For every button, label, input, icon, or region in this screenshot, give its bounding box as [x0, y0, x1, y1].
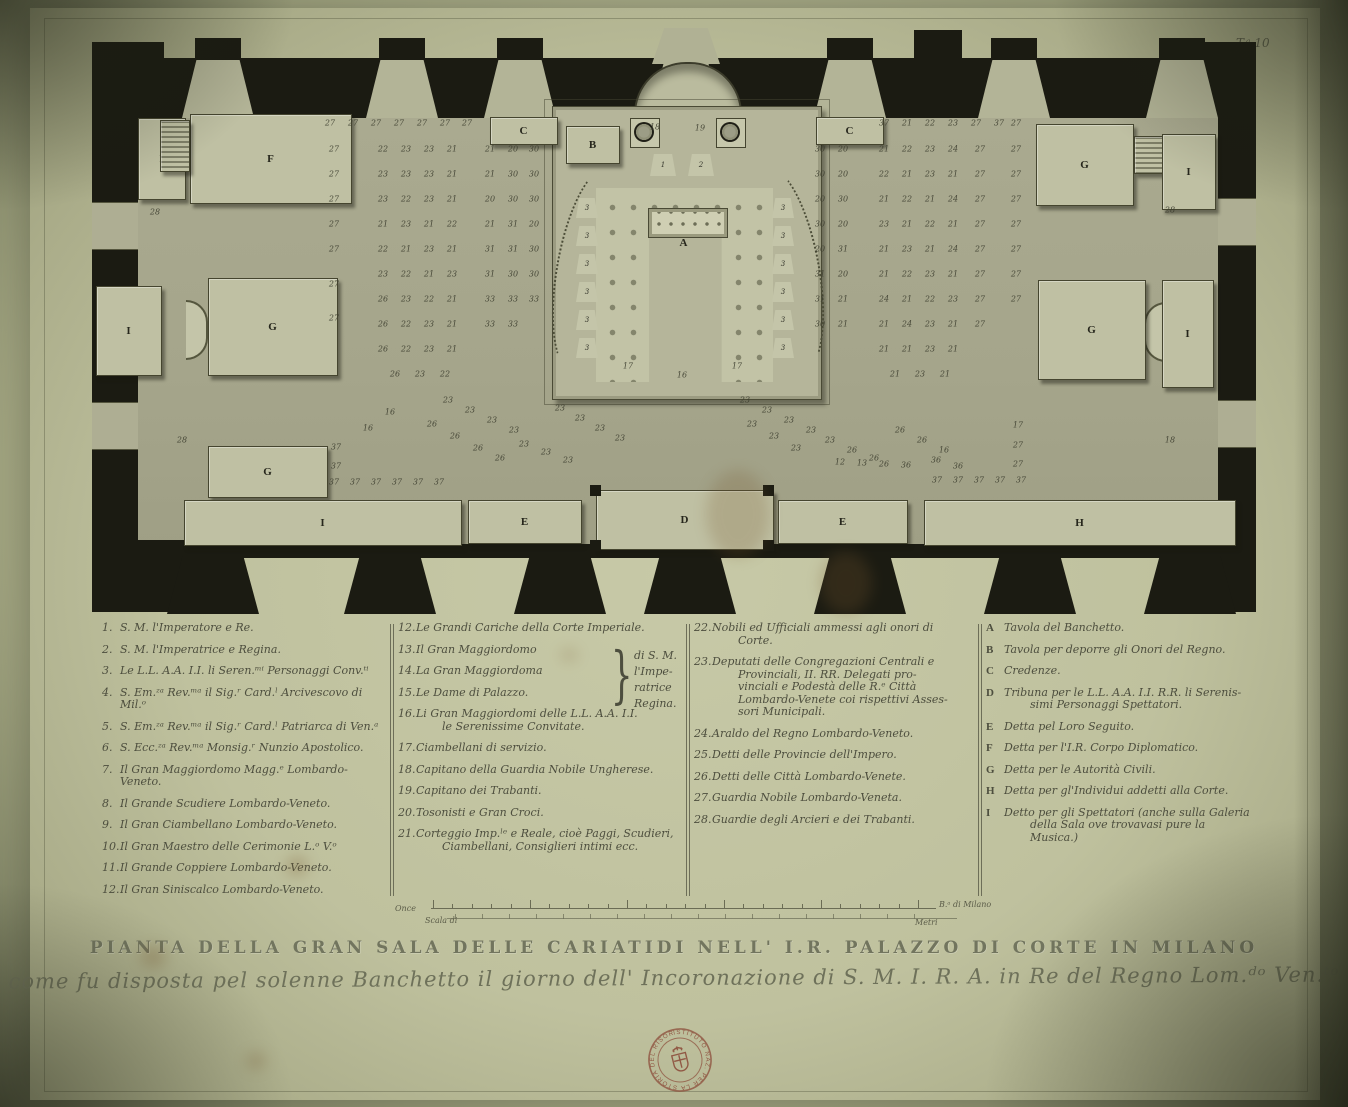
legend-item-text: Il Gran Maggiordomo Magg.ᵉ Lombardo-Vene…	[120, 764, 386, 789]
seating-number: 12	[835, 458, 845, 467]
stove	[716, 118, 746, 148]
legend-item-line: Detti delle Città Lombardo-Venete.	[712, 771, 906, 784]
seating-number: 23	[509, 426, 519, 435]
seating-number: 37	[413, 478, 423, 487]
legend-item-line: sori Municipali.	[712, 706, 948, 719]
seating-number: 21	[902, 345, 912, 354]
legend-item-key: B	[986, 644, 1004, 657]
seating-number: 31	[485, 270, 495, 279]
tribune-label: I	[126, 325, 131, 337]
seating-number: 33	[508, 295, 518, 304]
tribune-H: H	[924, 500, 1236, 546]
seating-number: 21	[902, 220, 912, 229]
seating-number: 27	[329, 145, 339, 154]
legend-item-key: 27.	[694, 792, 712, 805]
seat-stool: 3	[576, 254, 598, 274]
seating-number: 23	[447, 270, 457, 279]
legend-item: 21.Corteggio Imp.ˡᵉ e Reale, cioè Paggi,…	[398, 828, 680, 853]
legend-item-key: 8.	[102, 798, 120, 811]
legend-item-line: Detta per le Autorità Civili.	[1004, 764, 1156, 777]
seating-number: 18	[650, 123, 660, 132]
seating-number: 23	[948, 119, 958, 128]
scale-tick	[860, 904, 861, 909]
seating-number: 21	[948, 270, 958, 279]
legend-item-line: S. Ecc.ᶻᵃ Rev.ᵐᵃ Monsig.ʳ Nunzio Apostol…	[120, 742, 363, 755]
scale-tick	[509, 914, 510, 919]
seating-number: 21	[447, 245, 457, 254]
door-right-upper	[1218, 198, 1256, 246]
legend-item-line: le Serenissime Convitate.	[416, 721, 638, 734]
seating-number: 24	[948, 245, 958, 254]
legend-item: 20.Tosonisti e Gran Croci.	[398, 807, 680, 820]
seating-number: 27	[329, 280, 339, 289]
seating-number: 28	[1165, 206, 1175, 215]
legend-item: 27.Guardia Nobile Lombardo-Veneta.	[694, 792, 976, 805]
seating-number: 22	[401, 270, 411, 279]
seating-number: 23	[806, 426, 816, 435]
legend-item-text: La Gran Maggiordoma	[416, 665, 543, 678]
imperial-centerpiece	[648, 208, 728, 238]
legend-item-line: Detta per l'I.R. Corpo Diplomatico.	[1004, 742, 1198, 755]
scale-tick	[491, 904, 492, 909]
seating-number: 27	[975, 145, 985, 154]
tribune-label: E	[839, 516, 847, 528]
window-cap-top	[195, 38, 241, 60]
legend-item-text: Guardie degli Arcieri e dei Trabanti.	[712, 814, 915, 827]
scale-line-lower	[447, 918, 957, 919]
scale-tick	[840, 904, 841, 909]
scale-tick	[646, 904, 647, 909]
seating-number: 23	[378, 170, 388, 179]
seat-stool: 3	[772, 282, 794, 302]
scale-tick	[860, 914, 861, 919]
seating-number: 27	[329, 245, 339, 254]
tribune-label: D	[681, 514, 690, 526]
scale-tick	[536, 914, 537, 919]
seating-number: 26	[895, 426, 905, 435]
scale-tick	[887, 914, 888, 919]
legend-item: 23.Deputati delle Congregazioni Centrali…	[694, 656, 976, 719]
legend-item: 26.Detti delle Città Lombardo-Venete.	[694, 771, 976, 784]
window-cap-top	[991, 38, 1037, 60]
photographed-engraving: T.ᵃ 10 33333333333312 IFCCBGIIGGIGIEDEH	[0, 0, 1348, 1107]
scale-tick	[608, 904, 609, 909]
scale-tick	[511, 904, 512, 909]
seating-number: 21	[879, 195, 889, 204]
tribune-C: C	[490, 117, 558, 145]
window-bay-bottom	[984, 556, 1076, 614]
legend-item-key: 16.	[398, 708, 416, 733]
legend-item-line: simi Personaggi Spettatori.	[1004, 699, 1241, 712]
legend-item-line: Corte.	[712, 635, 933, 648]
scale-tick	[433, 900, 434, 909]
legend-item: 25.Detti delle Provincie dell'Impero.	[694, 749, 976, 762]
seating-number: 21	[424, 220, 434, 229]
seating-number: 26	[917, 436, 927, 445]
seating-number: 21	[485, 220, 495, 229]
seating-number: 27	[975, 245, 985, 254]
scale-tick	[530, 900, 531, 909]
legend-item: 17.Ciambellani di servizio.	[398, 742, 680, 755]
legend-item-key: 4.	[102, 687, 120, 712]
legend-item-line: La Gran Maggiordoma	[416, 665, 543, 678]
legend-brace: }	[611, 638, 633, 711]
tribune-label: I	[1186, 166, 1191, 178]
seating-number: 30	[529, 270, 539, 279]
seating-number: 22	[401, 345, 411, 354]
legend-item-text: Detti delle Provincie dell'Impero.	[712, 749, 897, 762]
seat-stool: 3	[576, 282, 598, 302]
wall-corner-tl	[92, 42, 164, 118]
door-left-upper	[92, 202, 138, 250]
seating-number: 23	[825, 436, 835, 445]
window-cap-top	[379, 38, 425, 60]
legend-item: 2.S. M. l'Imperatrice e Regina.	[102, 644, 386, 657]
seating-number: 27	[975, 195, 985, 204]
legend-separator	[390, 624, 394, 896]
seating-number: 31	[508, 245, 518, 254]
legend-item-key: 10.	[102, 841, 120, 854]
seating-number: 23	[424, 245, 434, 254]
legend-item-text: S. M. l'Imperatrice e Regina.	[120, 644, 281, 657]
legend-item-line: Corteggio Imp.ˡᵉ e Reale, cioè Paggi, Sc…	[416, 828, 674, 841]
seating-number: 23	[762, 406, 772, 415]
window-cap-top	[497, 38, 543, 60]
scale-tick	[627, 900, 628, 909]
window-bay-bottom	[1144, 556, 1236, 614]
seating-number: 36	[953, 462, 963, 471]
seating-number: 37	[974, 476, 984, 485]
seating-number: 21	[838, 295, 848, 304]
legend-item-line: Le Dame di Palazzo.	[416, 687, 528, 700]
legend-item: FDetta per l'I.R. Corpo Diplomatico.	[986, 742, 1266, 755]
seating-number: 21	[902, 119, 912, 128]
seating-number: 22	[925, 220, 935, 229]
legend-item-line: Detta per gl'Individui addetti alla Cort…	[1004, 785, 1228, 798]
scale-tick	[644, 914, 645, 919]
legend-item-text: Credenze.	[1004, 665, 1061, 678]
legend-item-line: Nobili ed Ufficiali ammessi agli onori d…	[712, 622, 933, 635]
seating-number: 33	[485, 320, 495, 329]
legend-item: 9.Il Gran Ciambellano Lombardo-Veneto.	[102, 819, 386, 832]
tribune-G: G	[208, 278, 338, 376]
scale-tick	[914, 914, 915, 919]
seating-number: 26	[450, 432, 460, 441]
legend-item-line: S. M. l'Imperatore e Re.	[120, 622, 254, 635]
legend-item-line: vinciali e Podestà delle R.ᵉ Città	[712, 681, 948, 694]
seating-number: 23	[378, 270, 388, 279]
page-title: PIANTA DELLA GRAN SALA DELLE CARIATIDI N…	[0, 938, 1348, 958]
legend-item-text: Tavola per deporre gli Onori del Regno.	[1004, 644, 1225, 657]
legend-item-line: Il Gran Maggiordomo Magg.ᵉ Lombardo-Vene…	[120, 764, 386, 789]
legend-brace-note-line: ratrice Regina.	[634, 680, 680, 712]
tribune-G: G	[1038, 280, 1146, 380]
seat-stool: 3	[772, 226, 794, 246]
tribune-post	[590, 485, 601, 496]
legend-item-line: Ciambellani, Consiglieri intimi ecc.	[416, 841, 674, 854]
legend-item: ATavola del Banchetto.	[986, 622, 1266, 635]
seating-number: 27	[329, 220, 339, 229]
legend-column-2: 12.Le Grandi Cariche della Corte Imperia…	[398, 622, 680, 862]
legend-item-line: Araldo del Regno Lombardo-Veneto.	[712, 728, 913, 741]
seating-number: 23	[401, 145, 411, 154]
seating-number: 26	[390, 370, 400, 379]
seating-number: 27	[975, 320, 985, 329]
legend-item-text: Il Grande Coppiere Lombardo-Veneto.	[120, 862, 332, 875]
scale-tick	[666, 904, 667, 909]
legend-item-key: 3.	[102, 665, 120, 678]
tribune-label: C	[520, 125, 529, 137]
legend-item-text: S. Ecc.ᶻᵃ Rev.ᵐᵃ Monsig.ʳ Nunzio Apostol…	[120, 742, 363, 755]
seating-number: 23	[563, 456, 573, 465]
legend-item-key: 1.	[102, 622, 120, 635]
seating-number: 23	[925, 145, 935, 154]
apse-niche	[652, 28, 720, 64]
seating-number: 23	[424, 145, 434, 154]
seat-stool: 3	[772, 338, 794, 358]
legend-item-text: Il Gran Maestro delle Cerimonie L.ᵒ V.ᵒ	[120, 841, 337, 854]
legend-item-key: 5.	[102, 721, 120, 734]
scale-tick	[806, 914, 807, 919]
seating-number: 37	[1016, 476, 1026, 485]
scale-tick	[743, 904, 744, 909]
seating-number: 37	[329, 478, 339, 487]
legend-item-text: Deputati delle Congregazioni Centrali eP…	[712, 656, 948, 719]
seating-number: 27	[975, 170, 985, 179]
tribune-label: G	[268, 321, 278, 333]
seating-number: 23	[415, 370, 425, 379]
seating-number: 22	[925, 295, 935, 304]
legend-item-text: Araldo del Regno Lombardo-Veneto.	[712, 728, 913, 741]
legend-item-key: I	[986, 807, 1004, 845]
seating-number: 30	[815, 220, 825, 229]
legend-item-text: Tribuna per le L.L. A.A. I.I. R.R. li Se…	[1004, 687, 1241, 712]
seating-number: 23	[401, 170, 411, 179]
tribune-label: G	[263, 466, 273, 478]
legend-item: 19.Capitano dei Trabanti.	[398, 785, 680, 798]
legend-item-text: Il Gran Maggiordomo	[416, 644, 537, 657]
legend-item-key: 20.	[398, 807, 416, 820]
window-bay-bottom	[814, 556, 906, 614]
seating-number: 21	[879, 145, 889, 154]
seating-number: 20	[815, 245, 825, 254]
seating-number: 37	[371, 478, 381, 487]
tribune-post	[763, 540, 774, 551]
tribune-C: C	[816, 117, 884, 145]
tribune-D: D	[596, 490, 774, 550]
seating-number: 21	[879, 320, 889, 329]
scale-label-braccia: B.ᵃ di Milano	[939, 900, 991, 909]
seating-number: 37	[879, 119, 889, 128]
scale-tick	[452, 904, 453, 909]
seating-number: 27	[394, 119, 404, 128]
seating-number: 13	[857, 459, 867, 468]
legend-item-line: Deputati delle Congregazioni Centrali e	[712, 656, 948, 669]
seating-number: 20	[838, 170, 848, 179]
seating-number: 37	[331, 443, 341, 452]
legend-item-line: Il Gran Maestro delle Cerimonie L.ᵒ V.ᵒ	[120, 841, 337, 854]
tribune-I: I	[184, 500, 462, 546]
seating-number: 23	[791, 444, 801, 453]
wall-block	[914, 30, 962, 60]
seating-number: 20	[508, 145, 518, 154]
seating-number: 27	[1011, 295, 1021, 304]
scale-tick	[588, 904, 589, 909]
seating-number: 21	[948, 345, 958, 354]
seating-number: 23	[424, 170, 434, 179]
seating-number: 23	[747, 420, 757, 429]
seating-number: 30	[529, 245, 539, 254]
legend-item: 12.Le Grandi Cariche della Corte Imperia…	[398, 622, 680, 635]
seating-number: 31	[838, 245, 848, 254]
seating-number: 26	[378, 295, 388, 304]
staircase	[160, 120, 190, 172]
seating-number: 36	[931, 456, 941, 465]
scale-tick	[563, 914, 564, 919]
legend-item-line: Il Gran Maggiordomo	[416, 644, 537, 657]
seating-number: 23	[615, 434, 625, 443]
seat-stool: 3	[576, 310, 598, 330]
door-right-lower	[1218, 400, 1256, 448]
legend-item-line: Tosonisti e Gran Croci.	[416, 807, 544, 820]
legend-item: 5.S. Em.ᶻᵃ Rev.ᵐᵃ il Sig.ʳ Card.ˡ Patria…	[102, 721, 386, 734]
seating-number: 17	[623, 362, 633, 371]
seating-number: 23	[925, 270, 935, 279]
seating-number: 21	[378, 220, 388, 229]
tribune-label: G	[1080, 159, 1090, 171]
seating-number: 21	[424, 270, 434, 279]
tribune-label: E	[521, 516, 529, 528]
legend-item: 7.Il Gran Maggiordomo Magg.ᵉ Lombardo-Ve…	[102, 764, 386, 789]
legend-item: IDetto per gli Spettatori (anche sulla G…	[986, 807, 1266, 845]
seating-number: 26	[869, 454, 879, 463]
legend-item: 8.Il Grande Scudiere Lombardo-Veneto.	[102, 798, 386, 811]
legend-item: 3.Le L.L. A.A. I.I. li Seren.ᵐⁱ Personag…	[102, 665, 386, 678]
legend-item-line: Il Gran Siniscalco Lombardo-Veneto.	[120, 884, 324, 897]
seating-number: 17	[1013, 421, 1023, 430]
scale-tick	[617, 914, 618, 919]
seating-number: 18	[1165, 436, 1175, 445]
seating-number: 28	[150, 208, 160, 217]
legend-column-4: ATavola del Banchetto.BTavola per deporr…	[986, 622, 1266, 853]
seating-number: 24	[948, 145, 958, 154]
legend-item-text: Le L.L. A.A. I.I. li Seren.ᵐⁱ Personaggi…	[120, 665, 369, 678]
seating-number: 21	[838, 320, 848, 329]
legend-item-line: Tavola per deporre gli Onori del Regno.	[1004, 644, 1225, 657]
seating-number: 27	[975, 220, 985, 229]
legend-item-text: Detta per gl'Individui addetti alla Cort…	[1004, 785, 1228, 798]
seating-number: 21	[447, 145, 457, 154]
seating-number: 31	[815, 295, 825, 304]
legend-item-key: 15.	[398, 687, 416, 700]
legend-item: 22.Nobili ed Ufficiali ammessi agli onor…	[694, 622, 976, 647]
seating-number: 23	[595, 424, 605, 433]
throne-seat: 1	[650, 154, 676, 176]
seating-number: 23	[424, 320, 434, 329]
legend-item-text: S. Em.ᶻᵃ Rev.ᵐᵃ il Sig.ʳ Card.ˡ Arcivesc…	[120, 687, 386, 712]
legend: 1.S. M. l'Imperatore e Re.2.S. M. l'Impe…	[102, 622, 1266, 906]
legend-item-key: 18.	[398, 764, 416, 777]
legend-item-key: G	[986, 764, 1004, 777]
seating-number: 37	[350, 478, 360, 487]
legend-item-line: Musica.)	[1004, 832, 1250, 845]
legend-item-text: Li Gran Maggiordomi delle L.L. A.A. I.I.…	[416, 708, 638, 733]
seating-number: 22	[378, 245, 388, 254]
seating-number: 23	[925, 320, 935, 329]
scale-tick	[833, 914, 834, 919]
scale-tick	[590, 914, 591, 919]
seating-number: 22	[401, 195, 411, 204]
seating-number: 27	[1013, 441, 1023, 450]
seat-stool: 3	[772, 310, 794, 330]
scale-tick	[918, 900, 919, 909]
legend-item: 11.Il Grande Coppiere Lombardo-Veneto.	[102, 862, 386, 875]
legend-item-text: S. Em.ᶻᵃ Rev.ᵐᵃ il Sig.ʳ Card.ˡ Patriarc…	[120, 721, 378, 734]
seating-number: 21	[925, 195, 935, 204]
scale-tick	[671, 914, 672, 919]
seating-number: 23	[519, 440, 529, 449]
tribune-B: B	[566, 126, 620, 164]
plan-letter-A: A	[680, 237, 689, 249]
seating-number: 21	[890, 370, 900, 379]
seating-number: 37	[953, 476, 963, 485]
seating-number: 22	[925, 119, 935, 128]
tribune-G: G	[208, 446, 328, 498]
seating-number: 30	[815, 145, 825, 154]
legend-item-line: Credenze.	[1004, 665, 1061, 678]
seating-number: 21	[925, 245, 935, 254]
seating-number: 30	[529, 195, 539, 204]
seat-stool: 3	[576, 226, 598, 246]
seating-number: 21	[447, 195, 457, 204]
legend-item-line: Le L.L. A.A. I.I. li Seren.ᵐⁱ Personaggi…	[120, 665, 369, 678]
legend-item-line: Detta pel Loro Seguito.	[1004, 721, 1134, 734]
seat-stool: 3	[772, 198, 794, 218]
seating-number: 21	[879, 270, 889, 279]
scale-tick	[698, 914, 699, 919]
scale-tick	[472, 904, 473, 909]
legend-item-key: 25.	[694, 749, 712, 762]
scale-tick	[821, 900, 822, 909]
seating-number: 22	[902, 145, 912, 154]
seating-number: 37	[331, 462, 341, 471]
scale-tick	[782, 904, 783, 909]
legend-item-key: 7.	[102, 764, 120, 789]
tribune-G: G	[1036, 124, 1134, 206]
legend-item-line: Il Gran Ciambellano Lombardo-Veneto.	[120, 819, 337, 832]
seating-number: 23	[555, 404, 565, 413]
seating-number: 21	[940, 370, 950, 379]
legend-item: 18.Capitano della Guardia Nobile Unghere…	[398, 764, 680, 777]
legend-item-line: Guardie degli Arcieri e dei Trabanti.	[712, 814, 915, 827]
legend-item-line: Capitano dei Trabanti.	[416, 785, 542, 798]
seating-number: 16	[939, 446, 949, 455]
legend-item-key: 14.	[398, 665, 416, 678]
scale-bar: Once Scala di B.ᵃ di Milano Metri	[395, 896, 975, 930]
scale-tick	[685, 904, 686, 909]
tribune-I: I	[1162, 280, 1214, 388]
legend-item: 1.S. M. l'Imperatore e Re.	[102, 622, 386, 635]
tribune-label: I	[320, 517, 325, 529]
tribune-label: F	[267, 153, 275, 165]
scale-tick	[763, 904, 764, 909]
tribune-post	[763, 485, 774, 496]
legend-item-key: 17.	[398, 742, 416, 755]
seating-number: 21	[879, 345, 889, 354]
seating-number: 27	[329, 170, 339, 179]
seating-number: 27	[1013, 460, 1023, 469]
seating-number: 27	[329, 314, 339, 323]
